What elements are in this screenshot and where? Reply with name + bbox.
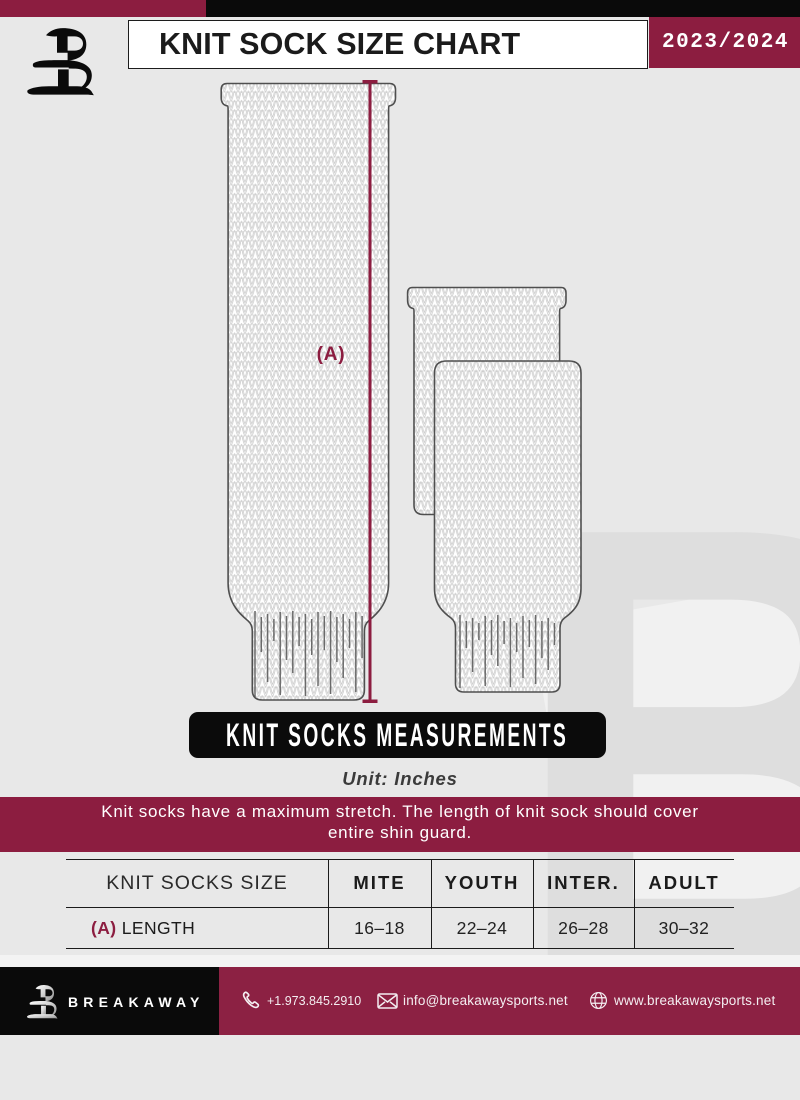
svg-text:(A): (A) [317, 344, 346, 365]
